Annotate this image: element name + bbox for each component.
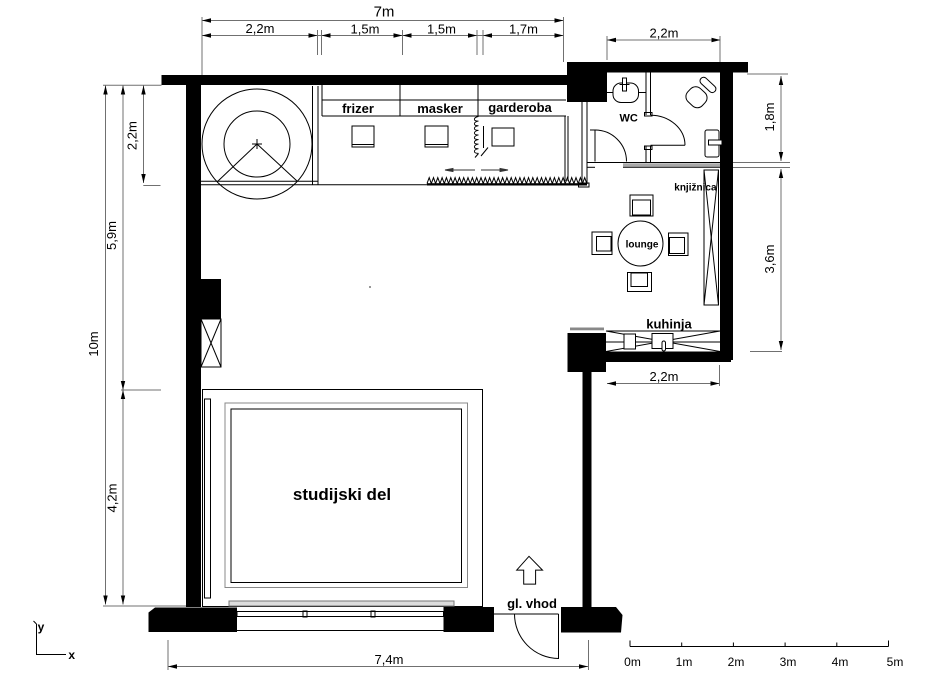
svg-text:1,5m: 1,5m (351, 22, 380, 37)
svg-text:5m: 5m (887, 655, 904, 669)
svg-text:3,6m: 3,6m (762, 245, 777, 274)
svg-text:kuhinja: kuhinja (646, 317, 692, 332)
svg-text:7,4m: 7,4m (375, 652, 404, 667)
svg-text:1m: 1m (676, 655, 693, 669)
svg-text:lounge: lounge (626, 240, 659, 251)
svg-text:0m: 0m (624, 655, 641, 669)
svg-text:WC: WC (620, 113, 638, 125)
svg-text:2,2m: 2,2m (650, 369, 679, 384)
svg-text:y: y (38, 620, 45, 634)
svg-text:studijski del: studijski del (293, 485, 391, 504)
svg-text:masker: masker (417, 101, 463, 116)
svg-text:4m: 4m (832, 655, 849, 669)
svg-text:5,9m: 5,9m (104, 221, 119, 250)
svg-text:2m: 2m (728, 655, 745, 669)
svg-text:3m: 3m (780, 655, 797, 669)
svg-text:1,7m: 1,7m (509, 22, 538, 37)
svg-text:2,2m: 2,2m (650, 26, 679, 41)
svg-text:1,8m: 1,8m (762, 103, 777, 132)
svg-text:4,2m: 4,2m (105, 484, 120, 513)
svg-text:x: x (68, 648, 75, 662)
svg-text:gl. vhod: gl. vhod (507, 596, 557, 611)
svg-text:2,2m: 2,2m (124, 121, 139, 150)
svg-text:frizer: frizer (342, 101, 374, 116)
svg-text:knjižnica: knjižnica (674, 183, 717, 194)
svg-text:7m: 7m (374, 4, 395, 21)
svg-text:2,2m: 2,2m (246, 21, 275, 36)
svg-text:garderoba: garderoba (488, 100, 552, 115)
svg-text:1,5m: 1,5m (427, 22, 456, 37)
svg-text:10m: 10m (86, 331, 101, 356)
